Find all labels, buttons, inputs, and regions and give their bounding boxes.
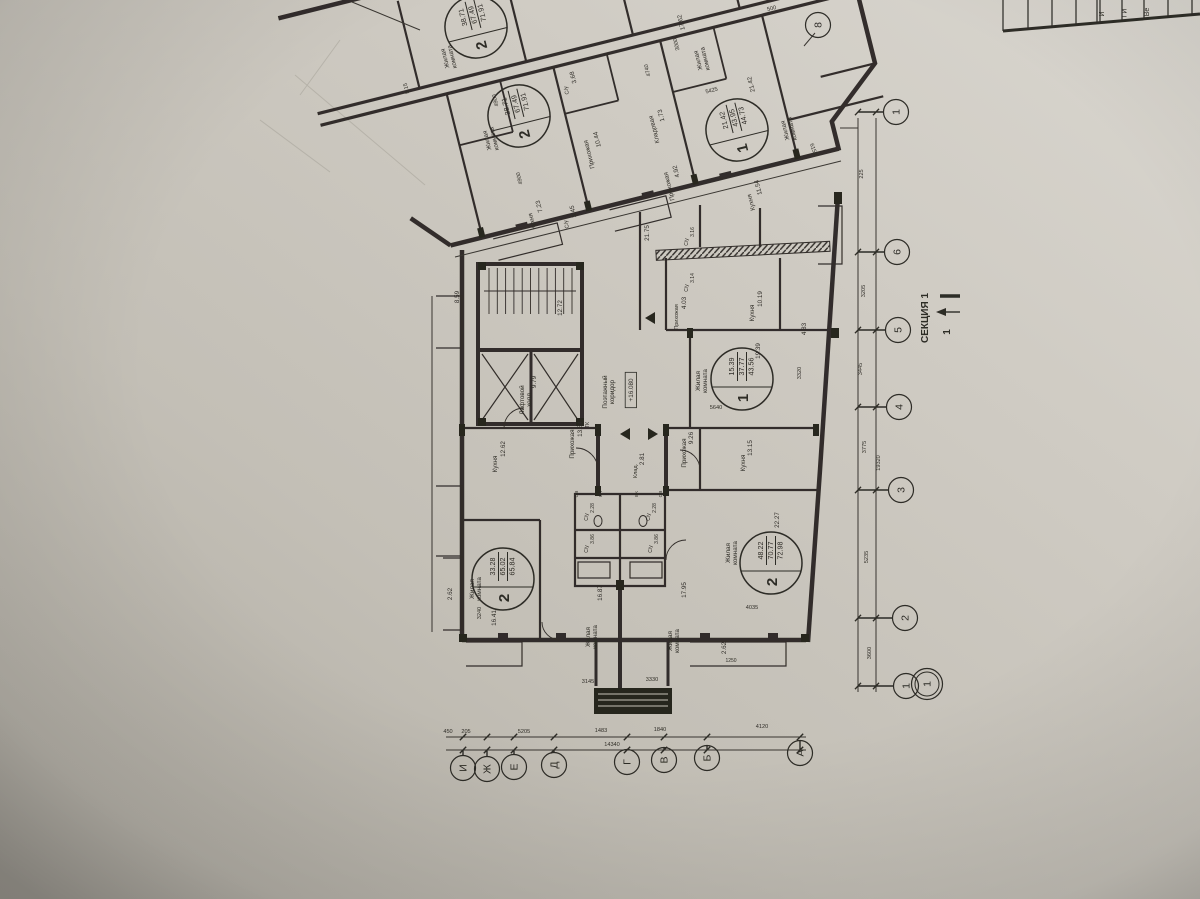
floor-plan-photo: 238.7167.4971.91238.7167.4971.91121.4243… — [0, 0, 1200, 899]
floor-plan-drawing: 238.7167.4971.91238.7167.4971.91121.4243… — [0, 0, 1200, 899]
photo-vignette — [0, 0, 1200, 899]
